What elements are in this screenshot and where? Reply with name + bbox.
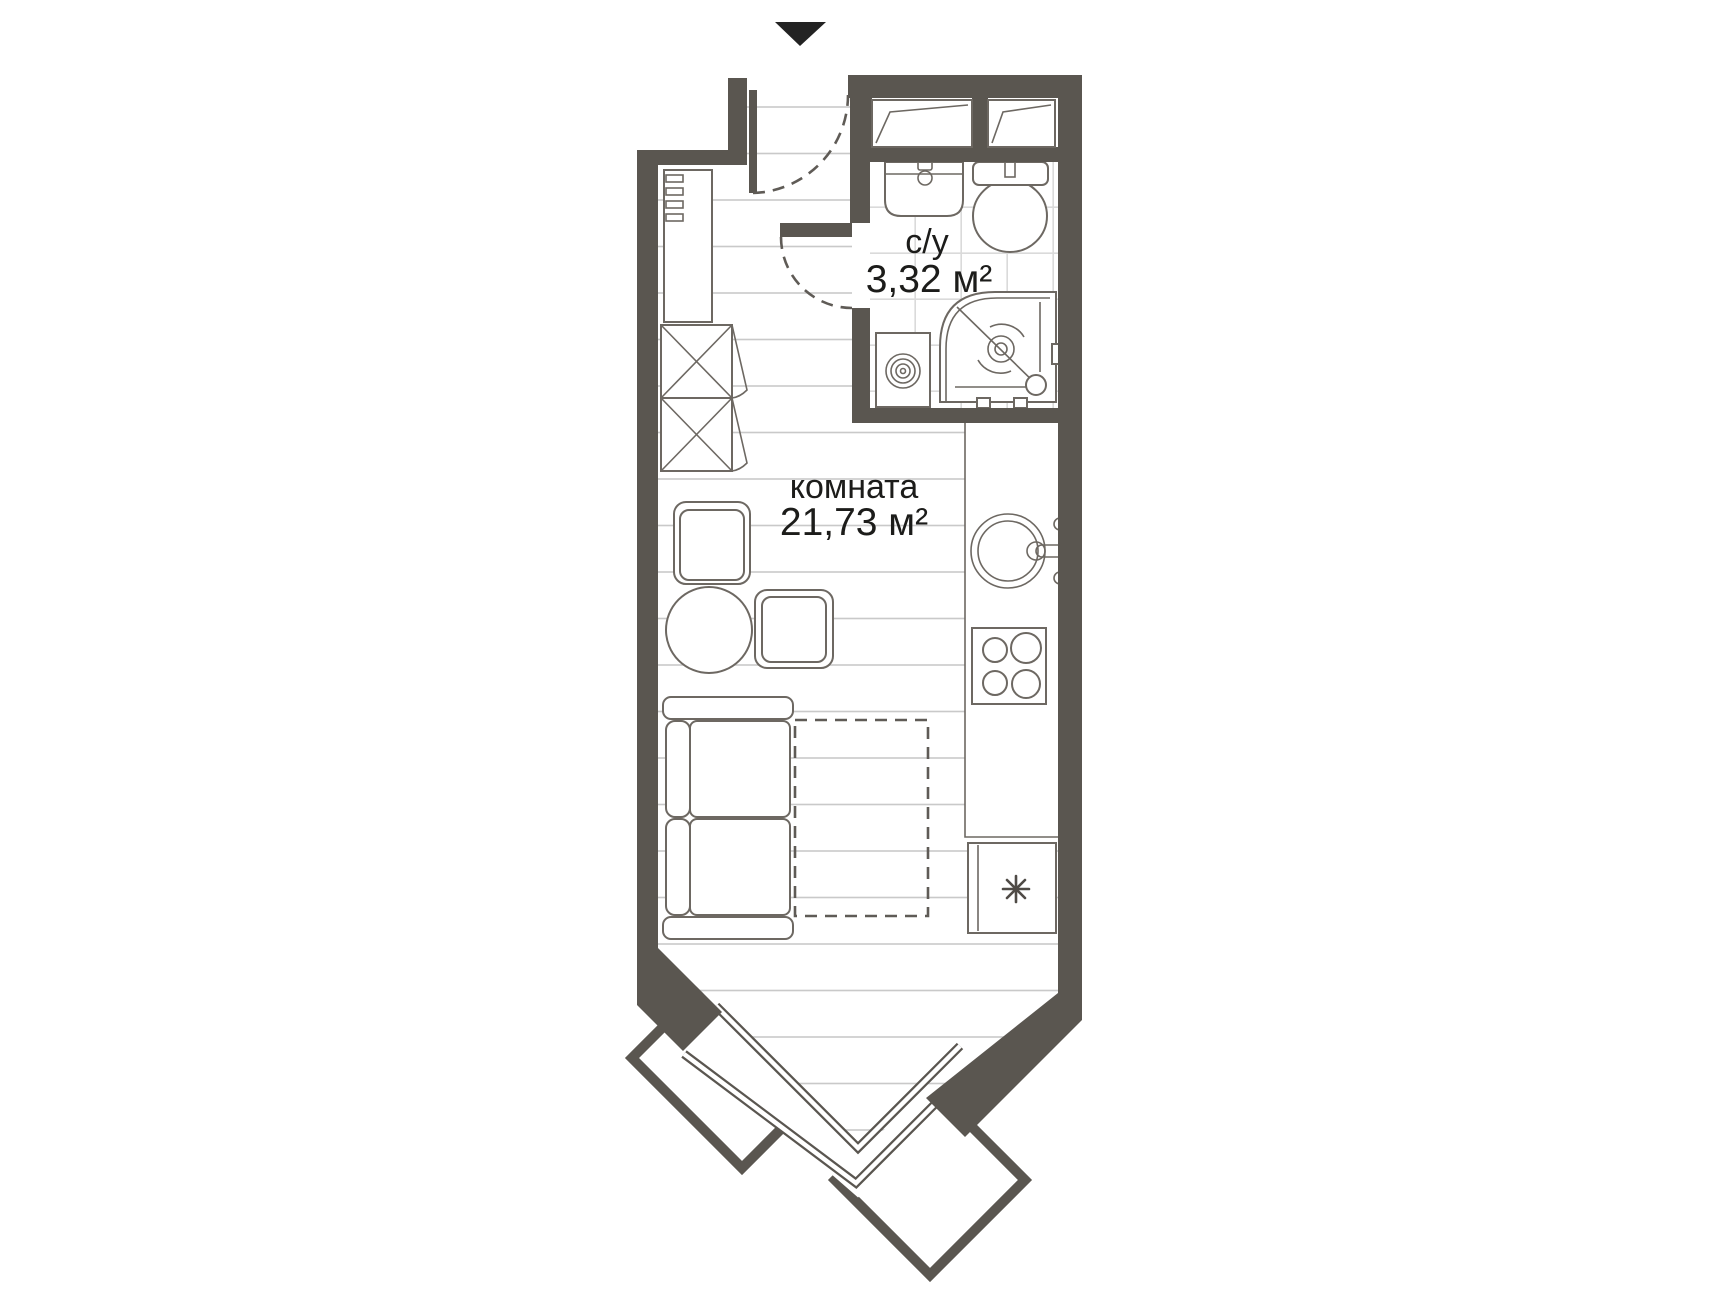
shaft-bottom-wall [850, 147, 1058, 162]
chair-1 [674, 502, 750, 584]
shower-icon [940, 292, 1064, 408]
entrance-door-leaf [749, 90, 757, 193]
washing-machine-icon [876, 333, 930, 407]
top-wall [848, 75, 1082, 98]
bathroom-area-label: 3,32 м² [866, 258, 993, 301]
fridge-icon [968, 843, 1056, 933]
bathroom-bottom-wall [852, 408, 1058, 423]
vent-shaft-2 [988, 100, 1055, 147]
bathroom-name-label: с/у [905, 223, 948, 261]
snowflake-asterisk-icon [1003, 876, 1029, 902]
hall-cabinet [664, 170, 712, 322]
bathroom-door-leaf [780, 223, 852, 237]
bathroom-left-wall-upper [850, 93, 870, 223]
floor-plan-drawing: с/у 3,32 м² комната 21,73 м² [0, 0, 1720, 1300]
entrance-arrow-icon [775, 22, 826, 46]
stove-icon [972, 628, 1046, 704]
toilet-icon [973, 162, 1048, 252]
room-area-label: 21,73 м² [780, 501, 928, 544]
chair-2 [755, 590, 833, 668]
dining-table [666, 587, 752, 673]
floor-plan-page: с/у 3,32 м² комната 21,73 м² [0, 0, 1720, 1300]
vent-shaft-1 [872, 100, 972, 147]
bathroom-left-wall-lower [852, 308, 870, 423]
